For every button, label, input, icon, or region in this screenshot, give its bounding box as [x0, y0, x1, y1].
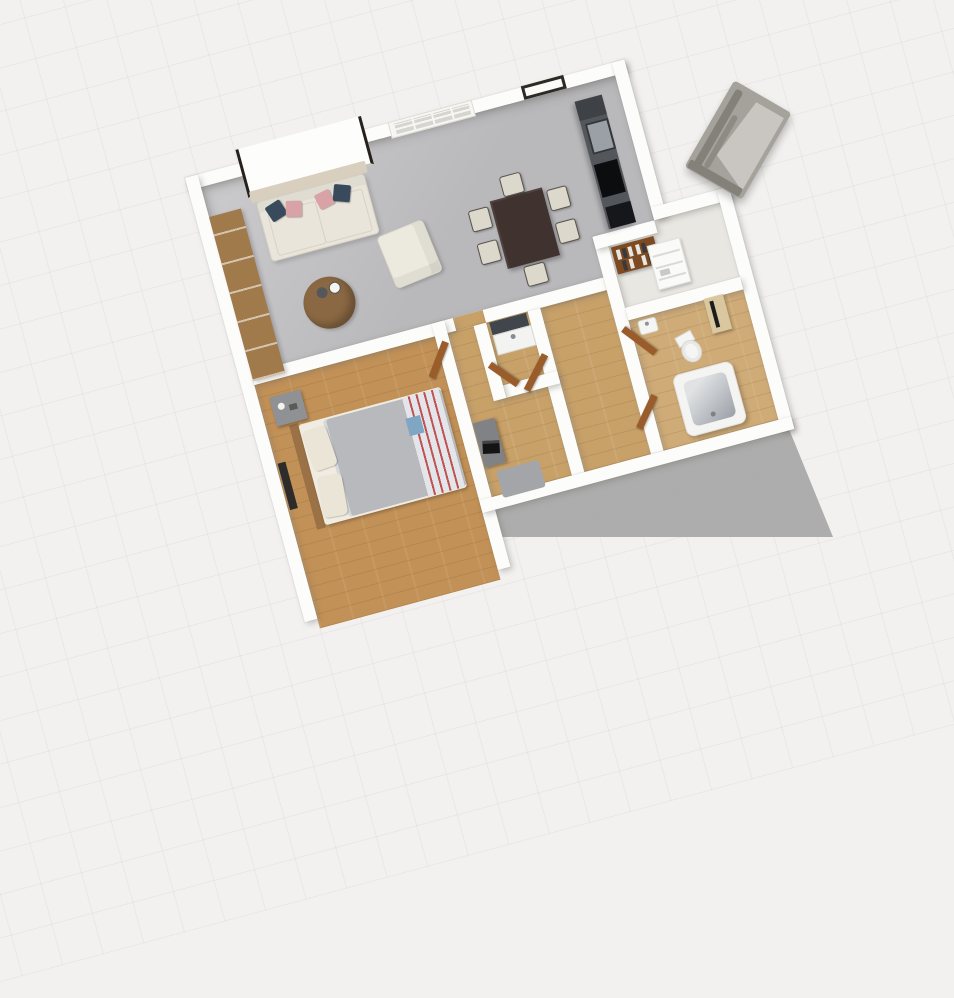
bathtub-drain	[710, 411, 716, 417]
cup-on-table[interactable]	[327, 280, 342, 295]
bowl-on-table[interactable]	[315, 286, 328, 299]
book-spine	[627, 246, 633, 257]
laptop[interactable]	[482, 440, 500, 454]
book-spine	[641, 255, 647, 266]
bathtub-basin	[682, 371, 736, 427]
pillow-navy-2[interactable]	[333, 184, 351, 202]
cabinet-screen	[709, 301, 720, 328]
vanity-faucet	[510, 333, 516, 339]
book-spine	[628, 258, 634, 269]
book-spine	[622, 260, 628, 271]
pillow-pink-1[interactable]	[286, 201, 302, 217]
shelf-line	[652, 249, 680, 258]
basin-faucet	[644, 321, 649, 326]
floorplan-viewport: { "scene": { "type": "3d-floorplan-rende…	[0, 0, 954, 537]
nightstand-item	[289, 403, 298, 411]
nightstand-bottle	[277, 402, 286, 411]
